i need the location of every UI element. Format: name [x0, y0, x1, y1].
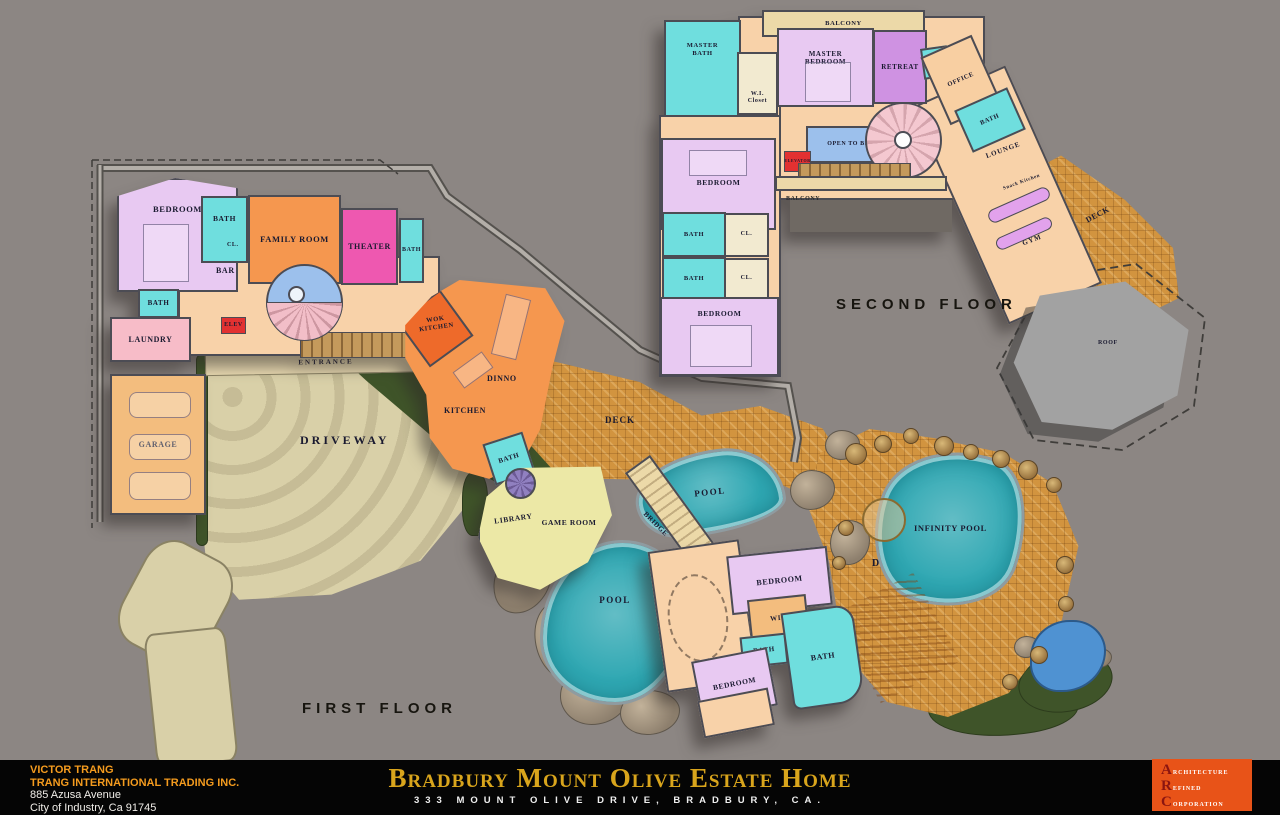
base-left-wing	[659, 115, 781, 377]
ground-layer: DRIVEWAY ENTRANCE DECK DECK DECK	[0, 0, 1280, 815]
room-bath-4: BATH	[482, 432, 535, 486]
logo-line-architecture: Architecture	[1161, 763, 1252, 779]
landscape-green	[330, 330, 570, 510]
room-bath-7: BATH	[662, 212, 726, 257]
rock	[642, 576, 699, 646]
tree	[838, 520, 854, 536]
spiral-stair-2f	[865, 102, 942, 179]
spiral-stair-2f-hub	[894, 131, 912, 149]
arc-logo: Architecture Refined Corporation	[1152, 759, 1252, 811]
rock	[640, 470, 685, 510]
logo-line-refined: Refined	[1161, 779, 1252, 795]
tree	[1056, 556, 1074, 574]
road	[143, 626, 239, 769]
snack-kitchen-counter	[986, 185, 1052, 225]
floor-titles: FIRST FLOOR SECOND FLOOR	[0, 0, 1280, 815]
room-elevator: ELEV	[221, 317, 246, 334]
deck-center: DECK	[505, 350, 850, 510]
room-bedroom-4: BEDROOM	[661, 138, 776, 230]
owner-address-1: 885 Azusa Avenue	[30, 789, 239, 802]
tree	[903, 428, 919, 444]
balcony-label: BALCONY	[825, 20, 862, 28]
wok-kitchen-label: WOK KITCHEN	[411, 313, 461, 335]
room-bedroom-3: BEDROOM	[691, 647, 778, 720]
car	[129, 434, 191, 460]
room-bedroom-5: BEDROOM	[660, 297, 779, 376]
closet-label: CL.	[227, 242, 239, 249]
family-room-label: FAMILY ROOM	[260, 234, 329, 244]
room-bath-small	[920, 45, 951, 79]
base-right-wing	[912, 66, 1102, 325]
owner-address-2: City of Industry, Ca 91745	[30, 802, 239, 815]
master-bath-label: MASTER BATH	[680, 42, 726, 58]
project-title: Bradbury Mount Olive Estate Home	[320, 763, 920, 793]
rock	[620, 690, 680, 735]
tree	[1058, 596, 1074, 612]
room-wok-kitchen	[396, 290, 473, 368]
pool-label: POOL	[694, 485, 726, 499]
roof-outline-dashed	[997, 264, 1205, 450]
room-bath-1: BATH CL.	[201, 196, 248, 263]
deck-label: DECK	[872, 558, 905, 570]
tree	[934, 436, 954, 456]
spiral-stair-steps	[266, 302, 343, 341]
closet-label: CL.	[741, 275, 753, 282]
roof: ROOF	[1010, 280, 1196, 436]
tree	[874, 435, 892, 453]
gym-label: GYM	[1021, 233, 1043, 248]
closet-label: CL.	[741, 231, 753, 238]
bath-label: BATH	[684, 275, 704, 283]
room-wi-closet: W.I. Closet	[737, 52, 778, 115]
bedroom-label: BEDROOM	[756, 573, 803, 587]
room-master-bath: MASTER BATH	[664, 20, 741, 117]
spiral-stair-hub	[288, 286, 305, 303]
bed	[690, 325, 752, 367]
elevator-label: ELEV	[224, 322, 243, 329]
rock	[485, 538, 561, 623]
deck-label: DECK	[1084, 205, 1111, 225]
bar-label: BAR	[216, 266, 235, 276]
room-closet-3: CL.	[724, 258, 769, 300]
tree	[845, 443, 867, 465]
roof-label: ROOF	[1098, 340, 1118, 347]
dining-label: DINNO	[487, 374, 517, 384]
base-top-row	[738, 16, 985, 122]
floor-plan-sheet: DRIVEWAY ENTRANCE DECK DECK DECK	[0, 0, 1280, 815]
tree	[1030, 646, 1048, 664]
rock	[830, 520, 870, 565]
room-elevator-2f: ELEVATOR	[784, 151, 811, 172]
rock	[700, 465, 740, 500]
pool-walk	[697, 687, 775, 738]
garage-label: GARAGE	[139, 440, 178, 450]
infinity-pool: INFINITY POOL	[854, 429, 1046, 628]
wi-closet-label: W.I. Closet	[741, 91, 775, 105]
landscape-green	[1014, 644, 1118, 720]
bedroom-label: BEDROOM	[712, 675, 757, 692]
owner-name: VICTOR TRANG	[30, 764, 239, 777]
kitchen-label: KITCHEN	[444, 406, 486, 416]
master-bedroom-label: MASTER BEDROOM	[796, 50, 856, 67]
deck-second-floor: DECK	[985, 150, 1185, 335]
bed	[689, 150, 747, 176]
office-label: OFFICE	[947, 71, 976, 90]
tree	[832, 556, 846, 570]
rock	[1014, 636, 1040, 658]
kitchen-dining-wing: WOK KITCHEN DINNO KITCHEN	[400, 278, 575, 483]
room-bath-3: BATH	[138, 289, 179, 318]
credits-block: VICTOR TRANG TRANG INTERNATIONAL TRADING…	[30, 764, 239, 814]
second-floor-building: BALCONY MASTER BATH W.I. Closet MASTER B…	[0, 0, 1280, 815]
room-bath-9: BATH	[954, 87, 1026, 153]
bath-label: BATH	[979, 112, 1001, 127]
bedroom-label: BEDROOM	[698, 309, 742, 318]
bath-label: BATH	[810, 651, 836, 664]
tree	[1046, 477, 1062, 493]
stairs-2f	[798, 163, 911, 187]
pool-lower: POOL	[540, 540, 690, 705]
rock	[1088, 648, 1112, 668]
room-bedroom-2: BEDROOM	[726, 546, 833, 615]
balcony-label: BALCONY	[786, 196, 820, 203]
hall-foyer	[178, 256, 440, 356]
landscape-green	[196, 354, 208, 546]
tree	[1018, 460, 1038, 480]
game-room-label: GAME ROOM	[536, 518, 602, 527]
site-lines	[0, 0, 1280, 815]
bath-label: BATH	[497, 451, 520, 466]
bed	[805, 62, 851, 102]
library-label: LIBRARY	[494, 511, 533, 525]
second-floor-title: SECOND FLOOR	[836, 296, 1017, 313]
deck-loungers	[834, 573, 960, 704]
room-closet-2: CL.	[724, 213, 769, 257]
bedroom-label: BEDROOM	[153, 204, 202, 214]
title-bar: VICTOR TRANG TRANG INTERNATIONAL TRADING…	[0, 760, 1280, 815]
room-master-bedroom: MASTER BEDROOM	[777, 28, 874, 107]
lounge-label: LOUNGE	[985, 140, 1022, 160]
owner-company: TRANG INTERNATIONAL TRADING INC.	[30, 777, 239, 790]
car	[129, 392, 191, 418]
driveway-area: DRIVEWAY	[150, 345, 480, 605]
bath-label: BATH	[753, 645, 775, 656]
pool-label: POOL	[599, 595, 631, 606]
property-line-dashed	[92, 160, 398, 174]
room-laundry: LAUNDRY	[110, 317, 191, 362]
snack-kitchen-counter	[994, 215, 1054, 251]
spiral-stair	[266, 264, 343, 341]
bedroom-label: BEDROOM	[697, 178, 741, 187]
first-floor-title: FIRST FLOOR	[302, 700, 457, 717]
stairwell-void	[790, 156, 952, 232]
deck-right: DECK	[800, 420, 1090, 720]
bath-label: BATH	[402, 247, 421, 254]
retaining-wall	[97, 168, 798, 462]
rock	[790, 470, 835, 510]
open-to-below-label: OPEN TO BELOW	[827, 141, 886, 148]
water-feature	[1030, 620, 1106, 692]
rock	[560, 665, 630, 725]
driveway-label: DRIVEWAY	[300, 433, 390, 447]
bath-label: BATH	[684, 231, 704, 239]
dining-table	[491, 294, 531, 360]
laundry-label: LAUNDRY	[129, 335, 173, 345]
bed	[143, 224, 189, 282]
infinity-pool-label: INFINITY POOL	[914, 523, 987, 533]
kitchen-island	[453, 351, 494, 388]
theater-label: THEATER	[348, 242, 391, 252]
room-bath-8: BATH	[662, 257, 726, 301]
bridge	[625, 455, 724, 575]
room-bath-5: BATH	[740, 633, 789, 669]
retaining-wall-top	[97, 168, 798, 462]
roof-layer: ROOF	[0, 0, 1280, 815]
bath-label: BATH	[213, 214, 236, 223]
room-bedroom-1: BEDROOM	[117, 178, 238, 292]
landscape-green	[462, 472, 488, 536]
bath-label: BATH	[148, 299, 170, 307]
room-theater: THEATER	[341, 208, 398, 285]
rock	[526, 594, 605, 687]
elevator-label: ELEVATOR	[784, 159, 810, 164]
logo-line-corporation: Corporation	[1161, 795, 1252, 811]
retreat-label: RETREAT	[881, 63, 919, 71]
entrance-walk: ENTRANCE	[205, 348, 447, 376]
pool-upper: POOL	[631, 442, 789, 542]
deck-table	[862, 498, 906, 542]
open-to-below: OPEN TO BELOW	[806, 126, 927, 163]
wic-label: WIC	[770, 613, 787, 623]
bridge-label: BRIDGE	[642, 510, 670, 538]
road	[107, 529, 245, 675]
small-spiral-stair	[505, 468, 536, 499]
tree	[992, 450, 1010, 468]
rock	[825, 430, 860, 460]
balcony-walk	[775, 176, 947, 191]
pool-patio	[648, 539, 759, 692]
first-floor-building: BEDROOM BATH CL. FAMILY ROOM THEATER BAT…	[0, 0, 1280, 815]
project-title-block: Bradbury Mount Olive Estate Home 333 MOU…	[320, 763, 920, 806]
project-address: 333 MOUNT OLIVE DRIVE, BRADBURY, CA.	[320, 795, 920, 806]
room-retreat: RETREAT	[873, 30, 927, 104]
room-office: OFFICE	[920, 35, 1001, 125]
landscape-green	[925, 670, 1080, 743]
deck-label: DECK	[605, 415, 635, 426]
entrance-label: ENTRANCE	[298, 357, 353, 366]
snack-kitchen-label: Snack Kitchen	[1002, 173, 1042, 192]
tree	[1002, 674, 1018, 690]
patio-oval	[662, 570, 734, 665]
room-wic: WIC	[747, 594, 810, 643]
room-garage: GARAGE	[110, 374, 206, 515]
car	[129, 472, 191, 500]
tree	[963, 444, 979, 460]
base-center	[779, 100, 955, 200]
balcony-top: BALCONY	[762, 10, 925, 37]
room-bath-2: BATH	[399, 218, 424, 283]
room-bath-6: BATH	[781, 603, 866, 710]
room-family-room: FAMILY ROOM	[248, 195, 341, 284]
library-game-room-wing: LIBRARY GAME ROOM	[478, 464, 619, 595]
entrance-steps	[300, 332, 442, 358]
